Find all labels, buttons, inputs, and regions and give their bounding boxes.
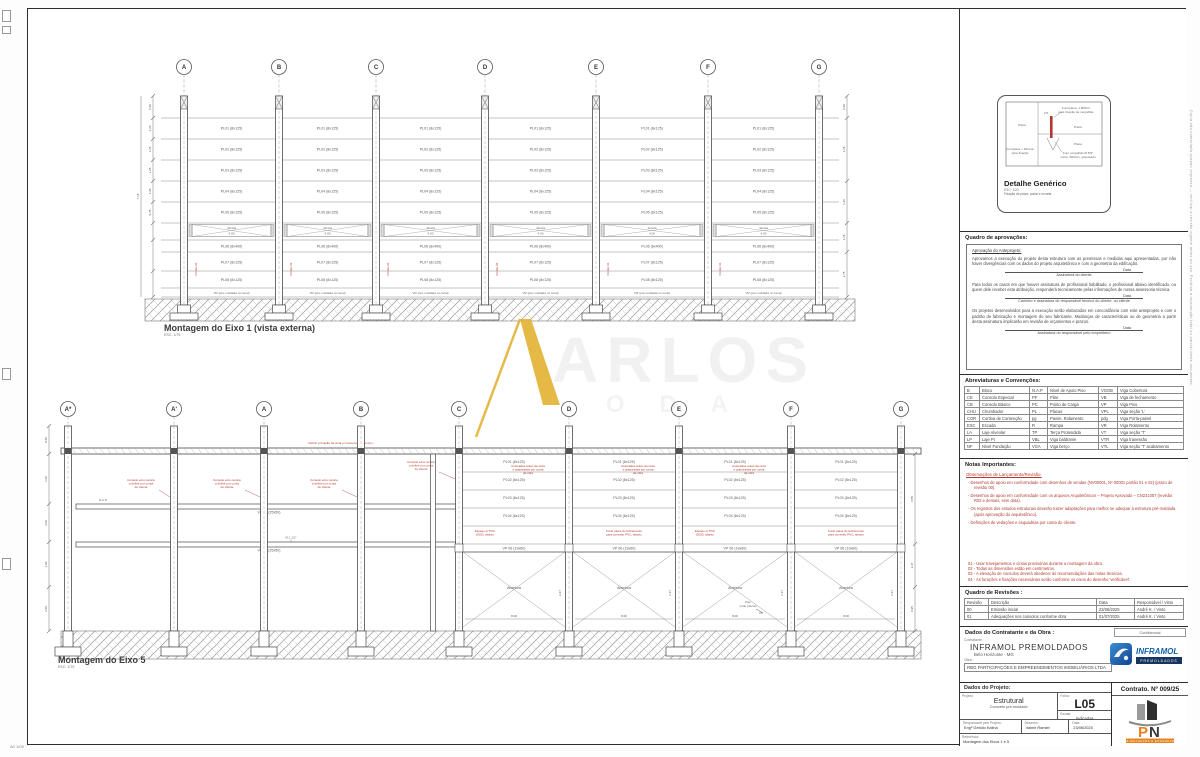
svg-text:PL05 (8x125): PL05 (8x125) xyxy=(641,211,663,215)
svg-text:PL03 (8x125): PL03 (8x125) xyxy=(221,169,243,173)
svg-text:VR (pré-moldada no local): VR (pré-moldada no local) xyxy=(309,291,345,295)
svg-text:8.00: 8.00 xyxy=(732,614,738,618)
abertura-label: Abertura xyxy=(617,586,631,590)
folha-numero: L05 xyxy=(1058,698,1111,710)
grid-letter: E xyxy=(677,407,681,413)
svg-text:VR (pré-moldada no local): VR (pré-moldada no local) xyxy=(412,291,448,295)
drawing-sheet: A0 1/09 Cópia não controlada quando impr… xyxy=(0,0,1200,757)
contrato-box: Contrato. Nº 009/25 P N PRÉ-MOLDADOS E E… xyxy=(1112,683,1188,746)
nota-bullet: - Os registros dos estudos estruturais d… xyxy=(974,506,1180,516)
abbrev-cell: PF xyxy=(1030,394,1048,401)
grid-letter: A' xyxy=(171,407,177,413)
abbrev-cell: PL xyxy=(1030,408,1048,415)
svg-text:VP 06 (19x60): VP 06 (19x60) xyxy=(613,547,636,551)
svg-text:comp. 600mm, grauteado: comp. 600mm, grauteado xyxy=(1060,155,1096,159)
pn-logo: P N PRÉ-MOLDADOS E ENGENHARIA xyxy=(1112,696,1188,744)
grid-letter: E xyxy=(594,65,598,71)
pedestal xyxy=(169,631,179,647)
svg-text:PL02 (8x125): PL02 (8x125) xyxy=(835,478,857,482)
revision-cell: André K. / Visto xyxy=(1135,613,1184,620)
grid-letter: C xyxy=(374,65,379,71)
piso-note: (vide planta) xyxy=(739,604,756,608)
abbrev-cell: VGOB xyxy=(1099,387,1118,394)
svg-text:PL05 (8x125): PL05 (8x125) xyxy=(317,211,339,215)
svg-text:2.5: 2.5 xyxy=(1044,111,1049,115)
abbrev-cell: VGA xyxy=(1030,443,1048,450)
detail-title: Detalhe Genérico xyxy=(1004,179,1108,188)
inframol-logo-subtext: PREMOLDADOS xyxy=(1140,659,1177,663)
svg-text:Janela: Janela xyxy=(426,226,435,230)
abbrev-cell: Laje PI xyxy=(980,436,1030,443)
abbrev-cell: Terça Protendida xyxy=(1048,429,1099,436)
svg-text:PL04 (8x125): PL04 (8x125) xyxy=(317,190,339,194)
abbrev-cell: pdg xyxy=(1099,415,1118,422)
beam-connector xyxy=(456,448,462,454)
grid-letter: A xyxy=(182,65,187,71)
sheet-border: PL01 (8x125)PL02 (8x125)PL03 (8x125)PL04… xyxy=(27,8,1186,745)
abbrev-cell: N.A.P xyxy=(1030,387,1048,394)
svg-text:PL02 (8x125): PL02 (8x125) xyxy=(317,148,339,152)
abbrev-row: CHUChumbadorPLPlacasVPLViga seção 'L' xyxy=(965,408,1184,415)
svg-text:PL06 (8x400): PL06 (8x400) xyxy=(753,245,775,249)
abbrev-cell: VPL xyxy=(1099,408,1118,415)
projeto-grid: Dados do Projeto: Projeto: Estrutural Co… xyxy=(960,683,1112,746)
abreviaturas-table: BBlocoN.A.PNível de Apoio PisoVGOBViga C… xyxy=(964,386,1184,450)
svg-text:PL05 (8x125): PL05 (8x125) xyxy=(753,211,775,215)
projeto-title: Dados do Projeto: xyxy=(960,683,1111,692)
grid-letter: G xyxy=(899,407,904,413)
title-block: PlacaFuro/placa: 1 Ø50 h/para fixação de… xyxy=(959,9,1187,746)
svg-text:PL07 (8x125): PL07 (8x125) xyxy=(317,261,339,265)
pedestal xyxy=(896,631,906,647)
abbrev-cell: Nível Fundação xyxy=(980,443,1030,450)
svg-text:PL03 (8x125): PL03 (8x125) xyxy=(420,169,442,173)
gate-note: Portão 01 xyxy=(194,262,198,275)
pvc-note: para conexão PVC, abaixo xyxy=(828,533,864,537)
abbrev-cell: CHU xyxy=(965,408,980,415)
drawing-scale: ESC: 1/75 xyxy=(58,666,146,670)
svg-text:PL08 (8x125): PL08 (8x125) xyxy=(530,278,552,282)
svg-text:PL04 (8x125): PL04 (8x125) xyxy=(753,190,775,194)
pedestal xyxy=(454,631,464,647)
abbrev-cell: Viga berço xyxy=(1048,443,1099,450)
abbrev-cell: VTL xyxy=(1099,443,1118,450)
abbrev-cell: Viga seção 'T' xyxy=(1118,429,1184,436)
abbrev-cell: COR xyxy=(965,415,980,422)
svg-text:PL03 (8x125): PL03 (8x125) xyxy=(641,169,663,173)
svg-text:PL02 (8x125): PL02 (8x125) xyxy=(420,148,442,152)
abbrev-row: CBConsolo BásicoPCPonto de CargaVPViga P… xyxy=(965,401,1184,408)
svg-text:4.00: 4.00 xyxy=(427,232,433,236)
beam-connector xyxy=(261,448,267,454)
abbrev-cell: Chumbador xyxy=(980,408,1030,415)
abbrev-row: LALaje AlveolarTPTerça ProtendidaVTViga … xyxy=(965,429,1184,436)
drawing-scale: ESC: 1/75 xyxy=(164,334,315,338)
svg-text:VR (pré-moldada no local): VR (pré-moldada no local) xyxy=(522,291,558,295)
beam-connector xyxy=(566,448,572,454)
signature-caption: Assinatura do cliente xyxy=(999,273,1149,277)
drawing-title-eixo5: Montagem do Eixo 5 ESC: 1/75 xyxy=(58,656,146,670)
svg-text:1.25: 1.25 xyxy=(148,167,152,173)
aprovacoes-subtitle: Aprovação do Anteprojeto: xyxy=(972,248,1176,253)
grid-letter: B xyxy=(359,407,364,413)
gate-note: Portão 01 xyxy=(386,262,390,275)
svg-text:1.25: 1.25 xyxy=(148,146,152,152)
abbrev-cell: VT xyxy=(1099,429,1118,436)
pedestal xyxy=(674,631,684,647)
svg-text:PL03 (8x125): PL03 (8x125) xyxy=(613,496,635,500)
svg-text:Janela: Janela xyxy=(759,226,768,230)
svg-text:PL04 (8x125): PL04 (8x125) xyxy=(221,190,243,194)
revision-cell: Emissão inicial xyxy=(989,606,1097,613)
graute-note: da obra xyxy=(523,471,534,475)
pedestal xyxy=(564,631,574,647)
abbrev-cell: Viga travessão xyxy=(1118,436,1184,443)
section-detalhe-generico: PlacaFuro/placa: 1 Ø50 h/para fixação de… xyxy=(960,9,1188,231)
svg-text:PL02 (8x125): PL02 (8x125) xyxy=(641,148,663,152)
revision-header-cell: Data xyxy=(1097,599,1135,606)
pipe-label: Ø 1.1/2" xyxy=(285,536,296,540)
beam-connector xyxy=(358,448,364,454)
svg-text:PL08 (8x125): PL08 (8x125) xyxy=(420,278,442,282)
abbrev-cell: Viga seção 'T' acabamento xyxy=(1118,443,1184,450)
abbrev-cell: VTR xyxy=(1099,436,1118,443)
gate-note: Portão 01 xyxy=(606,262,610,275)
svg-text:Janela: Janela xyxy=(323,226,332,230)
escala-valor: Indicadas xyxy=(1058,716,1111,721)
revision-header-cell: Descrição xyxy=(989,599,1097,606)
fold-mark xyxy=(2,368,11,380)
svg-text:2.47: 2.47 xyxy=(558,590,562,596)
svg-text:4.00: 4.00 xyxy=(760,232,766,236)
abbrev-cell: R xyxy=(1030,422,1048,429)
abertura-label: Abertura xyxy=(839,586,853,590)
svg-text:VR (pré-moldada no local): VR (pré-moldada no local) xyxy=(213,291,249,295)
abbrev-cell: Rampa xyxy=(1048,422,1099,429)
pedestal xyxy=(178,305,191,313)
sheet-size-label: A0 1/09 xyxy=(10,744,24,749)
beam-connector xyxy=(898,448,904,454)
svg-text:PL01 (8x125): PL01 (8x125) xyxy=(835,460,857,464)
abbrev-cell: Viga Rolamento xyxy=(1118,422,1184,429)
svg-text:PL02 (8x125): PL02 (8x125) xyxy=(724,478,746,482)
grid-letter: A xyxy=(262,407,267,413)
svg-text:0.55: 0.55 xyxy=(910,496,914,502)
svg-text:PL02 (8x125): PL02 (8x125) xyxy=(221,148,243,152)
abertura-label: Abertura xyxy=(728,586,742,590)
footing xyxy=(888,647,914,656)
espaco-pvc-note: Ø150, abaixo xyxy=(696,533,714,537)
detail-drawing: PlacaFuro/placa: 1 Ø50 h/para fixação de… xyxy=(1000,98,1108,172)
footing xyxy=(362,313,390,320)
svg-text:PL03 (8x125): PL03 (8x125) xyxy=(317,169,339,173)
detail-box: PlacaFuro/placa: 1 Ø50 h/para fixação de… xyxy=(997,95,1111,213)
obra-nome: RBG PARTICIPAÇÕES E EMPREENDIMENTOS IMOB… xyxy=(964,663,1112,672)
signature-caption: Carimbo e assinatura do responsável técn… xyxy=(999,299,1149,303)
svg-text:VP 06 (19x60): VP 06 (19x60) xyxy=(724,547,747,551)
svg-text:PL04 (8x125): PL04 (8x125) xyxy=(641,190,663,194)
footing xyxy=(778,647,804,656)
grid-letter: D xyxy=(483,65,488,71)
grid-letter: C xyxy=(457,407,462,413)
abbrev-cell: Laje Alveolar xyxy=(980,429,1030,436)
svg-text:PL04 (8x125): PL04 (8x125) xyxy=(503,514,525,518)
resp-nome: Engº Getúlio Kalina xyxy=(961,725,1020,730)
svg-text:VP 06 (19x60): VP 06 (19x60) xyxy=(835,547,858,551)
footing xyxy=(161,647,187,656)
mezz-post xyxy=(431,454,436,631)
svg-text:1.25: 1.25 xyxy=(148,125,152,131)
abertura-label: Abertura xyxy=(507,586,521,590)
svg-text:Placa: Placa xyxy=(1074,125,1082,129)
console-note: do cliente xyxy=(318,485,331,489)
inframol-logo-mark xyxy=(1110,643,1132,665)
aprovacoes-paragraph: Para todos os casos em que houver assina… xyxy=(972,282,1176,292)
fold-mark xyxy=(2,10,11,22)
pn-logo-tower-light xyxy=(1137,704,1145,720)
svg-text:PL01 (8x125): PL01 (8x125) xyxy=(420,127,442,131)
revision-cell: 23/06/2025 xyxy=(1097,606,1135,613)
grid-letter: A* xyxy=(65,407,72,413)
obra-label: Obra: xyxy=(964,658,1112,662)
notas-heading: Observações de Lançamento/Revisão: xyxy=(966,472,1184,477)
section-abreviaturas: Abreviaturas e Convenções: BBlocoN.A.PNí… xyxy=(960,374,1188,458)
beam-connector xyxy=(676,448,682,454)
detail-caption: Fixação de placa, portal e mureta xyxy=(1004,192,1108,196)
abbrev-cell: Viga Porta-painel xyxy=(1118,415,1184,422)
abbrev-cell: Escada xyxy=(980,422,1030,429)
grid-letter: F xyxy=(706,65,710,71)
svg-text:PL06 (8x400): PL06 (8x400) xyxy=(221,245,243,249)
svg-text:PL08 (8x125): PL08 (8x125) xyxy=(317,278,339,282)
svg-text:PL02 (8x125): PL02 (8x125) xyxy=(613,478,635,482)
svg-text:PL07 (8x125): PL07 (8x125) xyxy=(420,261,442,265)
pedestal xyxy=(273,305,286,313)
svg-text:PL05 (8x125): PL05 (8x125) xyxy=(221,211,243,215)
revision-header-row: RevisãoDescriçãoDataResponsável / Visto xyxy=(965,599,1184,606)
svg-text:PL01 (8x125): PL01 (8x125) xyxy=(530,127,552,131)
svg-text:PL04 (8x125): PL04 (8x125) xyxy=(530,190,552,194)
revisoes-table: RevisãoDescriçãoDataResponsável / Visto0… xyxy=(964,598,1184,620)
signature-block-resp-tecnico: Data Carimbo e assinatura do responsável… xyxy=(999,294,1149,303)
beam-connector xyxy=(171,448,177,454)
console-note: do cliente xyxy=(415,467,428,471)
svg-text:PL07 (8x125): PL07 (8x125) xyxy=(530,261,552,265)
footing xyxy=(805,313,833,320)
footing xyxy=(251,647,277,656)
svg-text:1.50: 1.50 xyxy=(44,476,48,482)
svg-text:PL04 (8x125): PL04 (8x125) xyxy=(835,514,857,518)
footing xyxy=(265,313,293,320)
svg-text:PL02 (8x125): PL02 (8x125) xyxy=(503,478,525,482)
signature-caption: Assinatura do responsável pelo empreitei… xyxy=(999,331,1149,335)
svg-text:VP 06 (19x60): VP 06 (19x60) xyxy=(503,547,526,551)
abbrev-cell: VP xyxy=(1099,401,1118,408)
section-revisoes: Quadro de Revisões : RevisãoDescriçãoDat… xyxy=(960,586,1188,626)
svg-text:PL05 (8x125): PL05 (8x125) xyxy=(530,211,552,215)
svg-text:4.00: 4.00 xyxy=(228,232,234,236)
abbrev-cell: Pilar xyxy=(1048,394,1099,401)
pedestal xyxy=(702,305,715,313)
graute-note: da obra xyxy=(633,471,644,475)
grid-letter: D xyxy=(567,407,572,413)
revisoes-title: Quadro de Revisões : xyxy=(964,589,1184,598)
console-note: do cliente xyxy=(135,485,148,489)
abbrev-cell: B xyxy=(965,387,980,394)
section-contratante: Dados do Contratante e da Obra : Confide… xyxy=(960,626,1188,682)
abbrev-cell: PC xyxy=(1030,401,1048,408)
footing xyxy=(556,647,582,656)
abbrev-row: CORCortina de ContençãopgPavim. Rolament… xyxy=(965,415,1184,422)
svg-text:4.00: 4.00 xyxy=(324,232,330,236)
revision-cell: 00 xyxy=(965,606,989,613)
svg-text:2.47: 2.47 xyxy=(910,562,914,568)
abbrev-cell: Viga baldrame xyxy=(1048,436,1099,443)
abbrev-cell: ESC xyxy=(965,422,980,429)
footing xyxy=(348,647,374,656)
abbrev-cell: Bloco xyxy=(980,387,1030,394)
nota-bullet: - Desenhos de apoio em conformidade com … xyxy=(974,480,1180,490)
pedestal xyxy=(590,305,603,313)
notas-numbered: 01 - Usar travejamentos e cintas provisó… xyxy=(968,561,1182,582)
projeto-subtipo: Concreto pré-moldado xyxy=(960,705,1057,709)
svg-text:4.00: 4.00 xyxy=(649,232,655,236)
contratante-cidade: Belo Horizonte - MG xyxy=(974,652,1112,657)
revision-header-cell: Responsável / Visto xyxy=(1135,599,1184,606)
elevation-eixo1-drawing: PL01 (8x125)PL02 (8x125)PL03 (8x125)PL04… xyxy=(131,53,871,343)
aprovacoes-box: Aprovação do Anteprojeto: Aprovamos a ex… xyxy=(966,244,1182,370)
abbrev-cell: Viga Cobertura xyxy=(1118,387,1184,394)
svg-text:0.40: 0.40 xyxy=(148,104,152,110)
svg-text:PL02 (8x125): PL02 (8x125) xyxy=(753,148,775,152)
abbrev-cell: Placas xyxy=(1048,408,1099,415)
svg-text:PL06 (8x400): PL06 (8x400) xyxy=(420,245,442,249)
revision-cell: André K. / Visto xyxy=(1135,606,1184,613)
signature-block-empreiteiro: Data Assinatura do responsável pelo empr… xyxy=(999,326,1149,335)
abbrev-cell: Viga de fechamento xyxy=(1118,394,1184,401)
contratante-label: Contratante: xyxy=(964,638,1112,642)
abbrev-row: NFNível FundaçãoVGAViga berçoVTLViga seç… xyxy=(965,443,1184,450)
svg-text:PL07 (8x125): PL07 (8x125) xyxy=(641,261,663,265)
abbrev-cell: Consolo Especial xyxy=(980,394,1030,401)
svg-text:PL06 (8x400): PL06 (8x400) xyxy=(530,245,552,249)
svg-text:PL04 (8x125): PL04 (8x125) xyxy=(724,514,746,518)
revision-row: 01Adequações nos consolos conforme obra0… xyxy=(965,613,1184,620)
console-note: do cliente xyxy=(221,485,234,489)
revision-header-cell: Revisão xyxy=(965,599,989,606)
referencia-valor: Montagem dos Eixos 1 e 5 xyxy=(960,739,1111,744)
abbrev-cell: VB xyxy=(1099,394,1118,401)
data-valor: 23/06/2025 xyxy=(1070,725,1110,730)
gate-note: Portão 01 xyxy=(289,262,293,275)
svg-text:8.00: 8.00 xyxy=(621,614,627,618)
svg-text:N: N xyxy=(1149,724,1160,741)
abbrev-cell: VBL xyxy=(1030,436,1048,443)
vergalhao-bar xyxy=(1050,116,1053,138)
pedestal xyxy=(813,305,826,313)
notas-bullets: - Desenhos de apoio em conformidade com … xyxy=(964,480,1184,525)
contratante-nome: INFRAMOL PREMOLDADOS xyxy=(970,643,1112,652)
svg-text:PL04 (8x125): PL04 (8x125) xyxy=(613,514,635,518)
gate-note: Portão 01 xyxy=(718,262,722,275)
svg-text:1.25: 1.25 xyxy=(842,199,846,205)
gate-note: Portão 01 xyxy=(495,262,499,275)
pn-logo-tower-dark xyxy=(1147,700,1157,720)
notas-title: Notas Importantes: xyxy=(964,461,1184,470)
pvc-note: para conexão PVC, abaixo xyxy=(606,533,642,537)
revision-cell: 01/07/2025 xyxy=(1097,613,1135,620)
inframol-logo: INFRAMOL PREMOLDADOS xyxy=(1110,640,1184,675)
pedestal xyxy=(63,631,73,647)
abbrev-cell: LP xyxy=(965,436,980,443)
svg-text:0.40: 0.40 xyxy=(842,104,846,110)
signature-block-cliente: Data Assinatura do cliente xyxy=(999,268,1149,277)
footing xyxy=(170,313,198,320)
abbrev-row: CEConsolo EspecialPFPilarVBViga de fecha… xyxy=(965,394,1184,401)
abbrev-cell: pg xyxy=(1030,415,1048,422)
projeto-tipo: Estrutural xyxy=(960,698,1057,705)
ground-hatch xyxy=(145,299,855,321)
revision-cell: Adequações nos consolos conforme obra xyxy=(989,613,1097,620)
svg-text:0.50: 0.50 xyxy=(44,437,48,443)
svg-text:4.00: 4.00 xyxy=(537,232,543,236)
svg-text:PL02 (8x125): PL02 (8x125) xyxy=(530,148,552,152)
pedestal xyxy=(259,631,269,647)
fold-mark xyxy=(2,558,11,570)
nap-label: N.A.P. xyxy=(99,498,108,502)
svg-text:PL06 (8x400): PL06 (8x400) xyxy=(317,245,339,249)
svg-text:2.47: 2.47 xyxy=(668,590,672,596)
espaco-pvc-note: Ø150, abaixo xyxy=(476,533,494,537)
section-projeto: Dados do Projeto: Projeto: Estrutural Co… xyxy=(960,682,1188,746)
abbrev-cell: VR xyxy=(1099,422,1118,429)
aprovacoes-paragraph: Os projetos desenvolvidos para a execuçã… xyxy=(972,308,1176,323)
nota-numbered: 04 - As furações e fixações necessárias … xyxy=(968,577,1182,582)
svg-text:8.00: 8.00 xyxy=(843,614,849,618)
svg-text:PL01 (8x125): PL01 (8x125) xyxy=(317,127,339,131)
section-aprovacoes: Quadro de aprovações: Aprovação do Antep… xyxy=(960,231,1188,374)
svg-text:1.25: 1.25 xyxy=(842,234,846,240)
svg-text:para fixação de vergalhão: para fixação de vergalhão xyxy=(1058,110,1094,114)
desenho-nome: Valmir Ramier xyxy=(1023,725,1068,730)
abbrev-cell: Nível de Apoio Piso xyxy=(1048,387,1099,394)
pedestal xyxy=(786,631,796,647)
svg-text:PL03 (8x125): PL03 (8x125) xyxy=(724,496,746,500)
abbrev-cell: Viga seção 'L' xyxy=(1118,408,1184,415)
svg-text:2.47: 2.47 xyxy=(890,590,894,596)
footing xyxy=(694,313,722,320)
svg-text:PL07 (8x125): PL07 (8x125) xyxy=(221,261,243,265)
fold-mark xyxy=(2,26,11,34)
footing xyxy=(666,647,692,656)
nota-bullet: - Desenhos de apoio em conformidade com … xyxy=(974,493,1180,503)
svg-text:1.25: 1.25 xyxy=(842,146,846,152)
beam-connector xyxy=(65,448,71,454)
svg-text:PL03 (8x125): PL03 (8x125) xyxy=(835,496,857,500)
abbrev-cell: CB xyxy=(965,401,980,408)
svg-text:PL03 (8x125): PL03 (8x125) xyxy=(530,169,552,173)
abbrev-cell: LA xyxy=(965,429,980,436)
aprovacoes-paragraph: Aprovamos a execução do projeto desta es… xyxy=(972,256,1176,266)
svg-text:Janela: Janela xyxy=(647,226,656,230)
svg-text:PL01 (8x125): PL01 (8x125) xyxy=(641,127,663,131)
footing xyxy=(582,313,610,320)
confidencial-badge: Confidencial xyxy=(1114,628,1186,637)
svg-text:VR (pré-moldada no local): VR (pré-moldada no local) xyxy=(634,291,670,295)
svg-text:1.25: 1.25 xyxy=(148,188,152,194)
revision-row: 00Emissão inicial23/06/2025André K. / Vi… xyxy=(965,606,1184,613)
svg-text:Placa: Placa xyxy=(1074,142,1082,146)
